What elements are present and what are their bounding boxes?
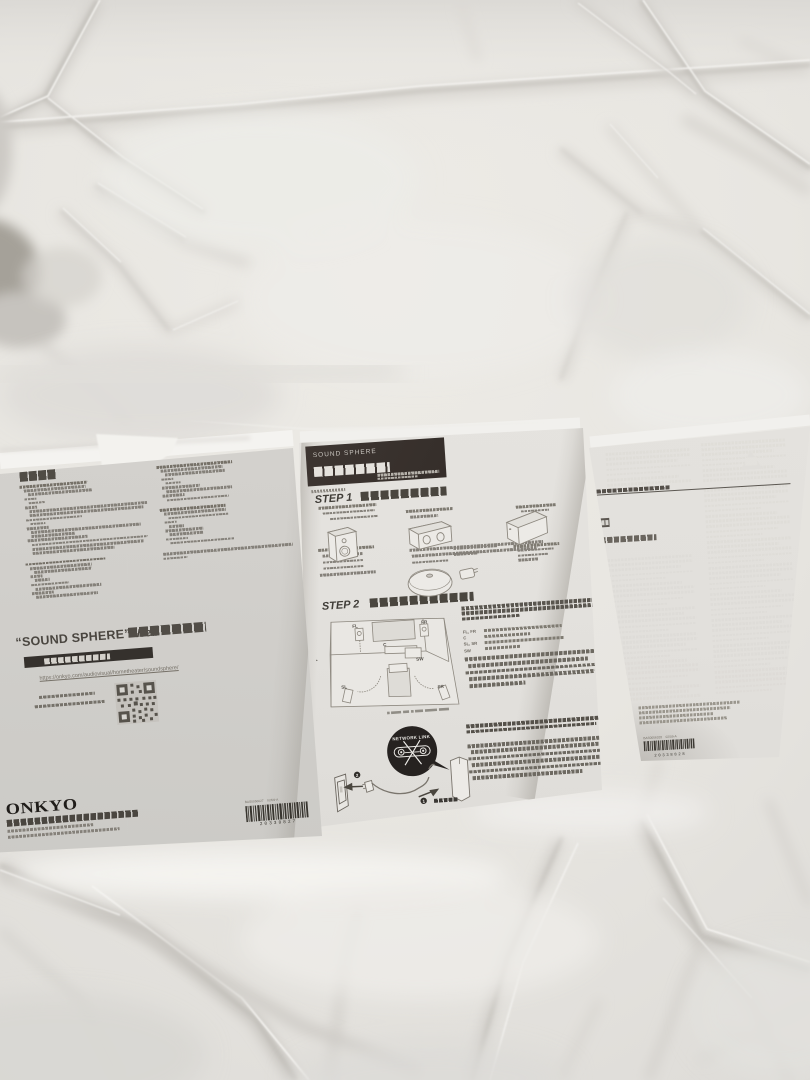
- svg-text:SR: SR: [437, 684, 444, 689]
- svg-text:FR: FR: [421, 619, 428, 624]
- svg-text:FL: FL: [352, 623, 358, 628]
- svg-text:*: *: [316, 658, 318, 663]
- svg-text:SL: SL: [341, 684, 347, 689]
- svg-text:SW: SW: [416, 656, 424, 662]
